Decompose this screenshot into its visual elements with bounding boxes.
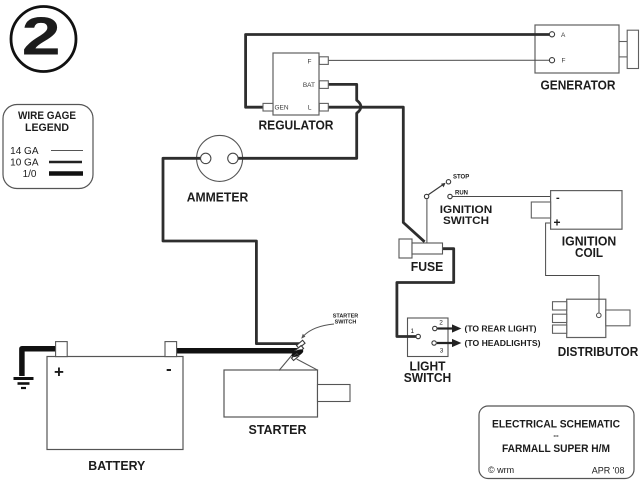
svg-text:APR '08: APR '08 <box>592 466 625 476</box>
svg-text:REGULATOR: REGULATOR <box>259 118 335 133</box>
svg-text:SWITCH: SWITCH <box>443 215 489 227</box>
svg-text:LEGEND: LEGEND <box>25 122 69 134</box>
svg-text:2: 2 <box>439 320 443 327</box>
svg-text:COIL: COIL <box>575 245 603 260</box>
svg-text:-: - <box>556 192 560 204</box>
svg-text:1/0: 1/0 <box>23 169 37 180</box>
svg-text:14 GA: 14 GA <box>10 146 39 157</box>
svg-text:L: L <box>308 105 312 112</box>
svg-text:BATTERY: BATTERY <box>88 458 145 473</box>
svg-text:2: 2 <box>22 6 61 66</box>
svg-text:(TO HEADLIGHTS): (TO HEADLIGHTS) <box>465 339 541 348</box>
svg-text:+: + <box>54 363 64 382</box>
svg-text:GENERATOR: GENERATOR <box>541 78 617 93</box>
svg-text:RUN: RUN <box>455 190 468 196</box>
svg-text:AMMETER: AMMETER <box>187 190 249 205</box>
svg-text:FARMALL SUPER H/M: FARMALL SUPER H/M <box>502 443 610 455</box>
svg-text:STOP: STOP <box>453 175 469 181</box>
svg-text:FUSE: FUSE <box>411 259 444 274</box>
svg-text:F: F <box>308 58 312 65</box>
svg-text:--: -- <box>553 431 559 440</box>
svg-text:DISTRIBUTOR: DISTRIBUTOR <box>558 344 639 359</box>
svg-text:-: - <box>166 360 172 379</box>
svg-text:ELECTRICAL SCHEMATIC: ELECTRICAL SCHEMATIC <box>492 419 620 431</box>
svg-text:1: 1 <box>411 328 415 335</box>
svg-text:(TO REAR LIGHT): (TO REAR LIGHT) <box>465 324 537 333</box>
svg-text:STARTER: STARTER <box>249 422 308 437</box>
svg-text:SWITCH: SWITCH <box>404 370 452 385</box>
svg-text:BAT: BAT <box>303 82 315 89</box>
svg-text:SWITCH: SWITCH <box>335 320 357 326</box>
svg-text:3: 3 <box>440 348 444 355</box>
svg-text:WIRE GAGE: WIRE GAGE <box>18 110 76 122</box>
svg-text:10 GA: 10 GA <box>10 158 39 169</box>
svg-text:+: + <box>554 216 561 230</box>
svg-text:© wrm: © wrm <box>488 465 514 475</box>
svg-text:F: F <box>562 58 566 65</box>
svg-text:GEN: GEN <box>275 104 289 111</box>
svg-text:A: A <box>561 32 566 39</box>
